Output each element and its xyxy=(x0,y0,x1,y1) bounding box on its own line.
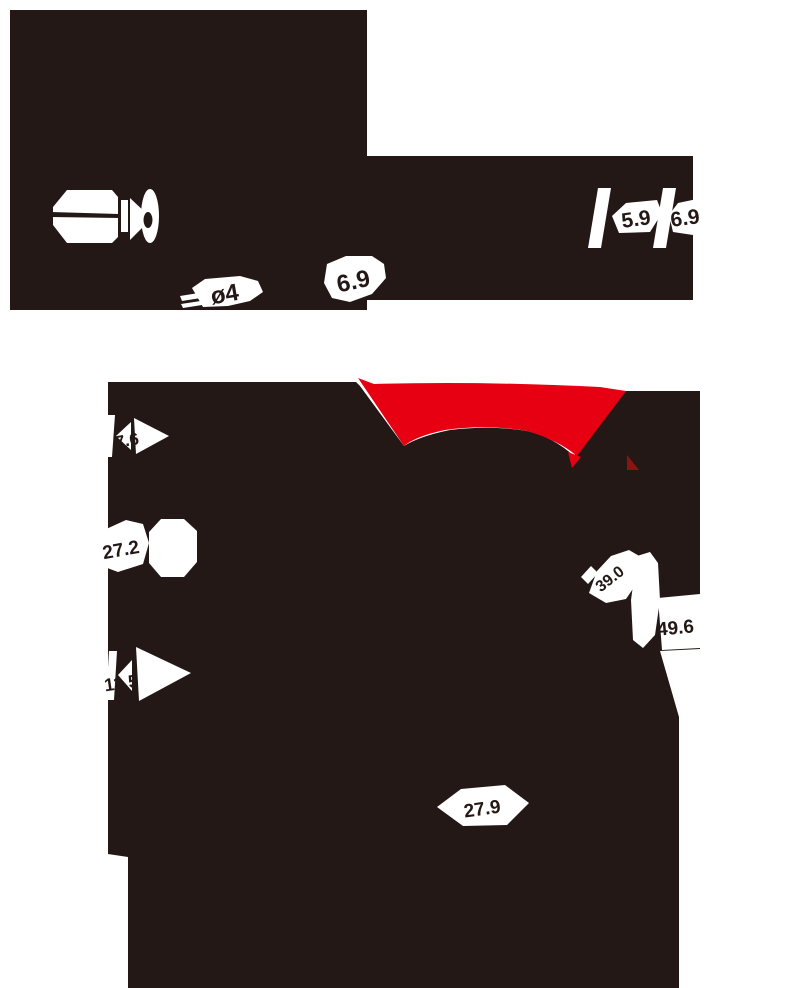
earbud-tip-hole xyxy=(144,212,153,228)
dim-11-5-extension-bar-1 xyxy=(92,648,103,701)
dim-label-phi4: ø4 xyxy=(209,279,242,311)
dim-label-7-6: 7.6 xyxy=(114,429,141,452)
dimension-drawing-page: ø4 6.9 5.9 6.9 7.6 27.2 xyxy=(0,0,800,988)
dim-label-6-9-right: 6.9 xyxy=(669,205,701,232)
dim-label-5-9: 5.9 xyxy=(620,206,652,233)
dim-label-49-6: 49.6 xyxy=(656,616,695,640)
dim-27-2-octagon xyxy=(149,519,197,577)
earbud-neck-shape xyxy=(121,200,128,232)
dimension-drawing: ø4 6.9 5.9 6.9 7.6 27.2 xyxy=(0,0,800,988)
front-view-silhouette xyxy=(108,382,700,988)
